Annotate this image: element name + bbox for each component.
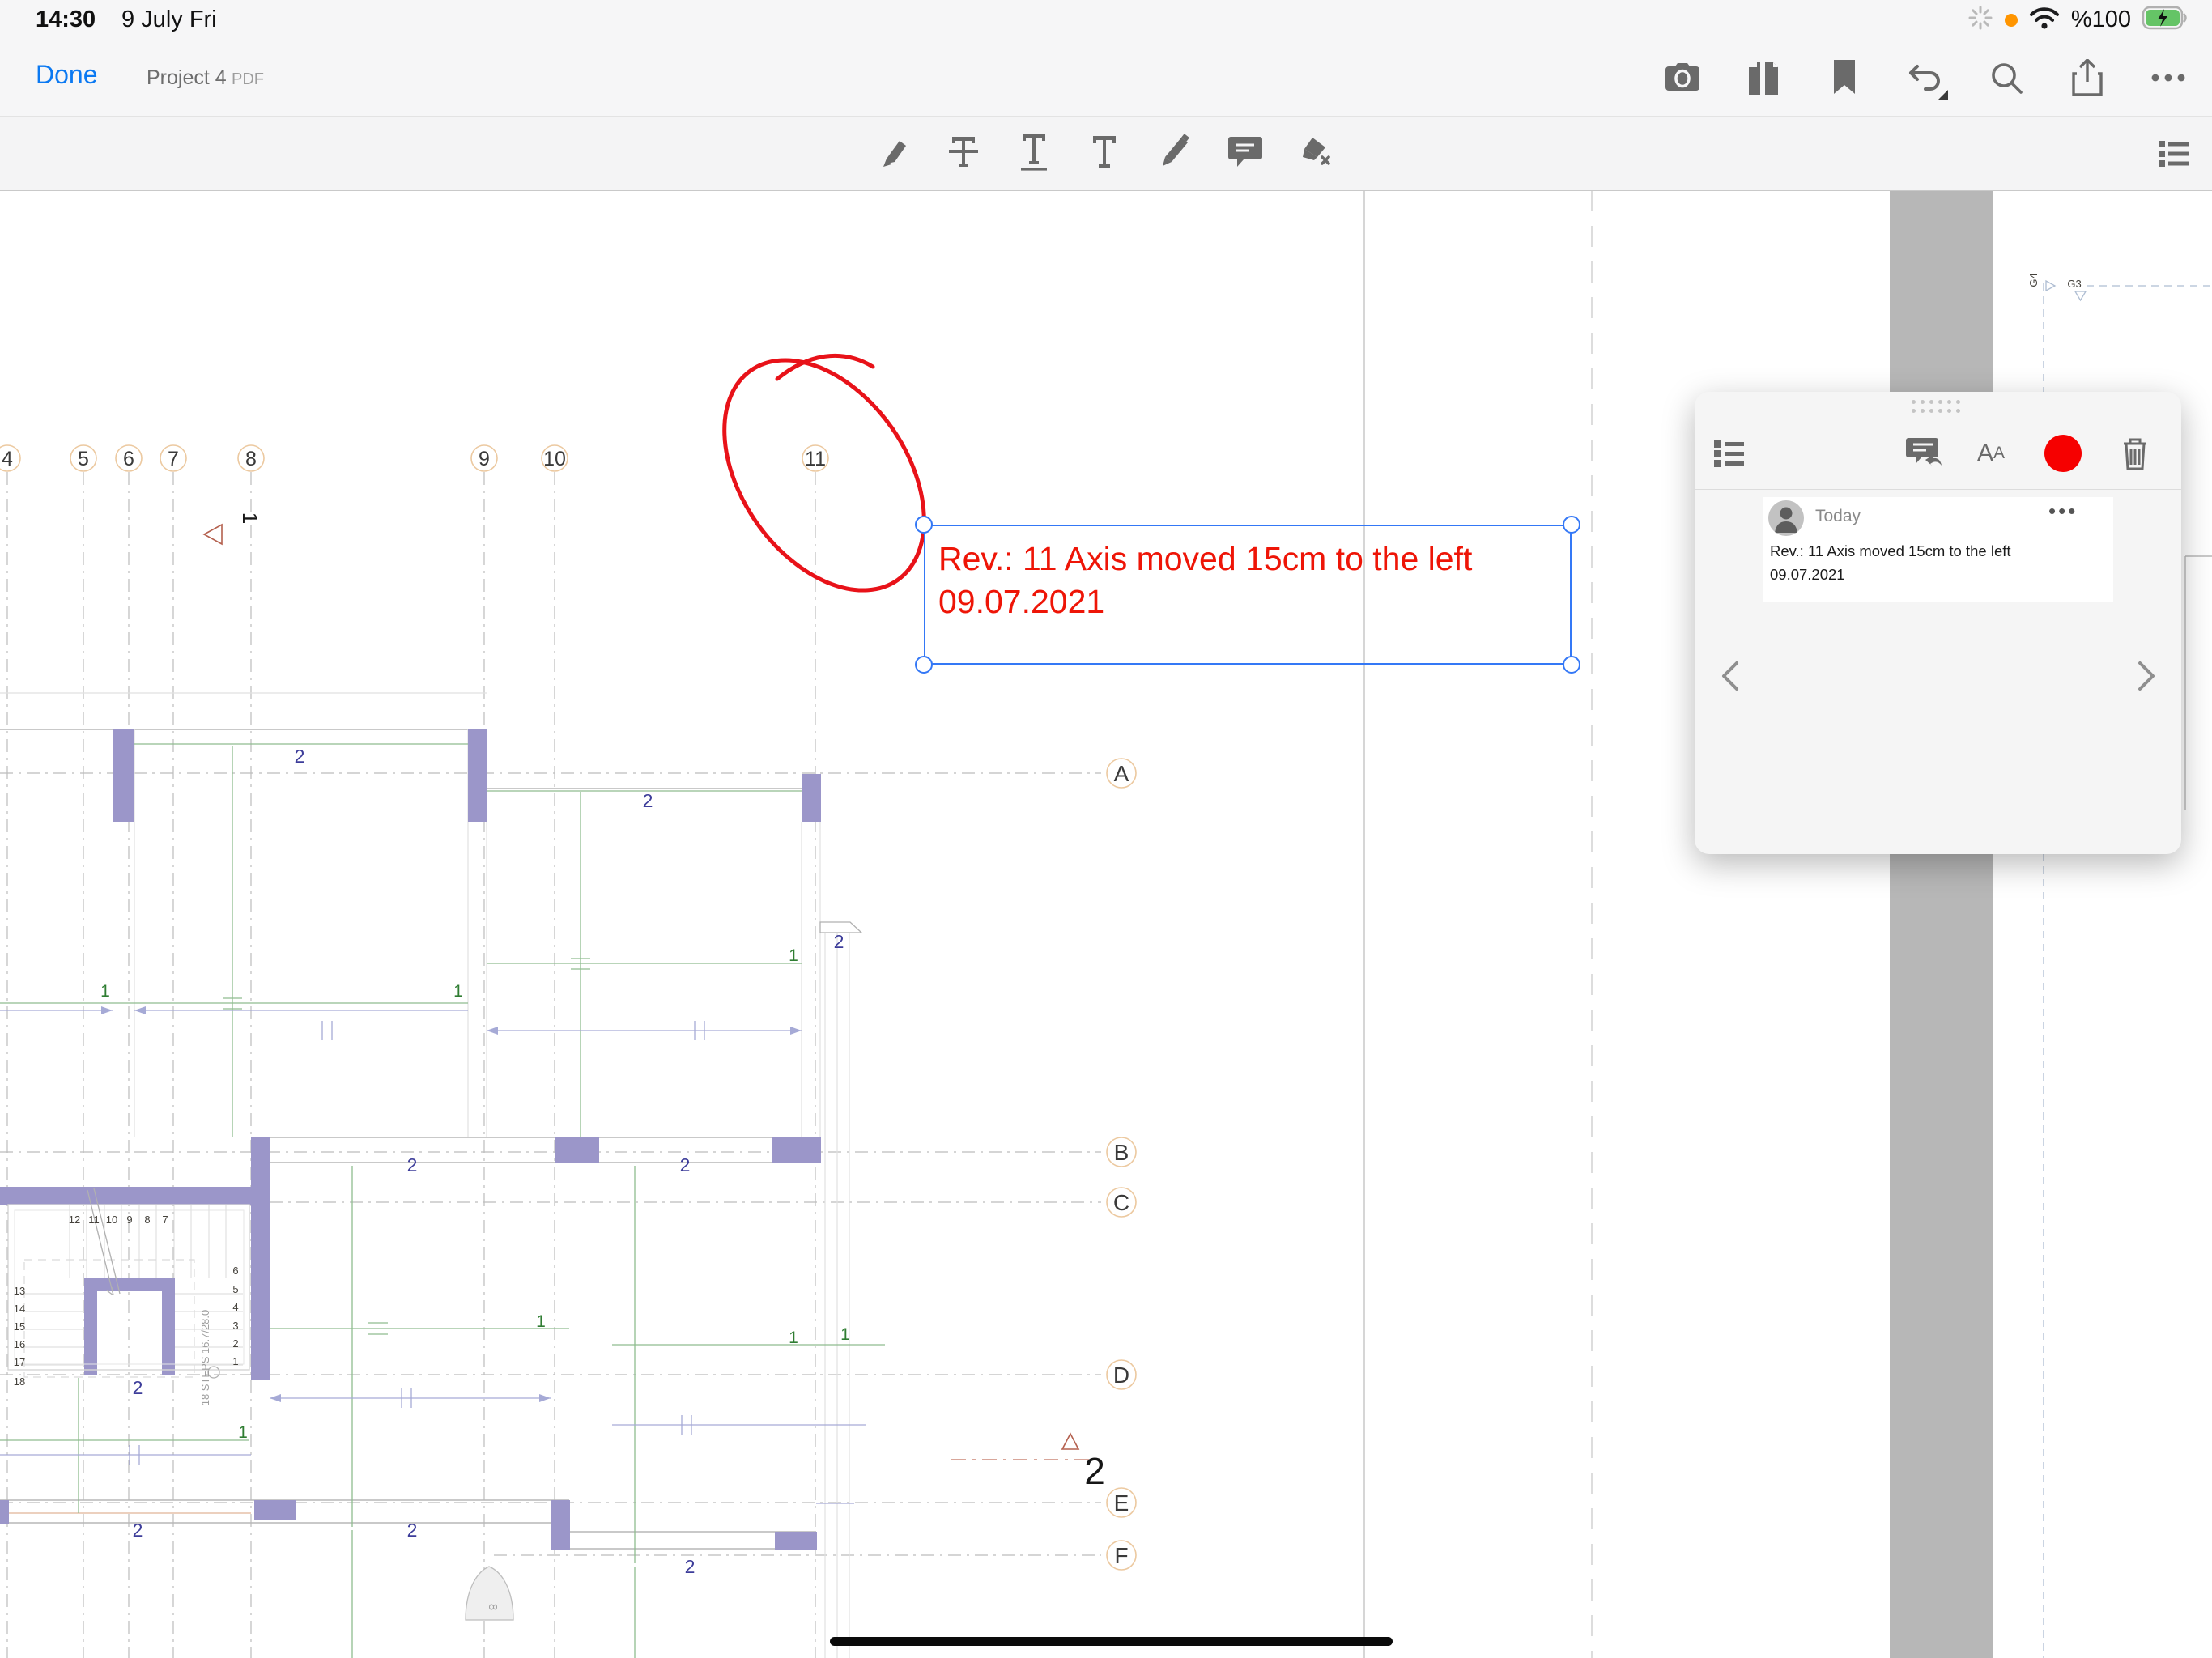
plan-label: 18 STEPS 16.7/28.0	[199, 1310, 211, 1406]
plan-label: F	[1114, 1543, 1128, 1568]
plan-label: 8	[245, 448, 257, 470]
plan-label: 2	[295, 746, 305, 767]
plan-label: 7	[162, 1214, 168, 1226]
plan-label: 2	[643, 790, 653, 811]
plan-label: 2	[133, 1377, 143, 1398]
plan-label: A	[1114, 761, 1129, 786]
plan-label: 10	[543, 448, 566, 470]
done-button[interactable]: Done	[36, 60, 98, 90]
status-bar: 14:30 9 July Fri %100	[0, 0, 2212, 39]
selection-handle-bottom-right[interactable]	[1563, 656, 1580, 674]
activity-spinner-icon	[1967, 5, 1993, 35]
strikethrough-text-tool-button[interactable]	[944, 128, 983, 176]
battery-percent: %100	[2071, 6, 2131, 33]
plan-label: D	[1113, 1363, 1129, 1388]
organize-pages-button[interactable]	[1744, 53, 1783, 102]
plan-label: 2	[232, 1337, 238, 1350]
bookmark-button[interactable]	[1825, 53, 1864, 102]
status-icons: %100	[1967, 5, 2189, 35]
more-options-button[interactable]	[2149, 53, 2188, 102]
plan-outline-lines	[0, 693, 849, 1658]
plan-label: 1	[100, 982, 110, 1001]
plan-label: G3	[2067, 278, 2081, 290]
document-type-badge: PDF	[232, 70, 264, 89]
eraser-tool-button[interactable]	[1296, 128, 1335, 176]
plan-label: 5	[232, 1283, 238, 1295]
plan-label: B	[1114, 1140, 1129, 1165]
comment-timestamp: Today	[1815, 507, 1861, 526]
home-indicator[interactable]	[830, 1637, 1393, 1646]
plan-label: 16	[14, 1338, 25, 1350]
battery-charging-icon	[2142, 6, 2189, 34]
annotation-text: Rev.: 11 Axis moved 15cm to the left 09.…	[938, 538, 1472, 623]
comment-list-view-button[interactable]	[1703, 427, 1755, 479]
plan-label: E	[1114, 1490, 1129, 1516]
annotation-tools	[874, 128, 1335, 176]
comment-text: Rev.: 11 Axis moved 15cm to the left 09.…	[1770, 539, 2110, 586]
plan-label: 1	[536, 1312, 546, 1331]
plan-label: 2	[685, 1556, 696, 1577]
plan-label: 9	[126, 1214, 132, 1226]
plan-label: 2	[407, 1154, 418, 1175]
pencil-draw-tool-button[interactable]	[1155, 128, 1194, 176]
selection-handle-top-left[interactable]	[915, 516, 933, 534]
document-title: Project 4	[147, 66, 227, 90]
lavender-dimensions	[0, 1006, 866, 1503]
walls	[0, 729, 821, 1550]
delete-annotation-button[interactable]	[2109, 427, 2161, 479]
plan-label: C	[1113, 1190, 1129, 1215]
comment-list-button[interactable]	[2155, 130, 2193, 178]
comment-card[interactable]: Today ••• Rev.: 11 Axis moved 15cm to th…	[1763, 497, 2113, 602]
plan-label: 2	[834, 931, 844, 952]
share-button[interactable]	[2068, 53, 2107, 102]
popup-drag-handle[interactable]	[1912, 400, 1965, 413]
plan-label: 10	[106, 1214, 117, 1226]
plan-label: 2	[133, 1520, 143, 1541]
plan-label: 3	[232, 1320, 238, 1332]
selection-handle-bottom-left[interactable]	[915, 656, 933, 674]
plan-label: 2	[407, 1520, 418, 1541]
selection-handle-top-right[interactable]	[1563, 516, 1580, 534]
main-toolbar: Done Project 4 PDF	[0, 39, 2212, 117]
plan-label: 6	[232, 1265, 238, 1277]
plan-label: 1	[238, 1423, 248, 1442]
door-window-symbols	[466, 922, 861, 1620]
orange-privacy-dot	[2005, 14, 2018, 27]
add-text-tool-button[interactable]	[1085, 128, 1124, 176]
plan-label: 1	[789, 1329, 798, 1347]
app-root: { "status": {"time": "14:30", "date": "9…	[0, 0, 2212, 1658]
comment-tool-button[interactable]	[1226, 128, 1265, 176]
plan-label: 1	[840, 1325, 850, 1344]
plan-label: 1	[789, 946, 798, 965]
plan-label: 8	[144, 1214, 150, 1226]
underline-text-tool-button[interactable]	[1015, 128, 1053, 176]
undo-button[interactable]	[1906, 53, 1945, 102]
popup-divider	[1695, 489, 2181, 490]
comment-popup: AA Today ••• Rev.: 11 Axis moved 15cm to…	[1695, 392, 2181, 854]
plan-label: 11	[805, 448, 826, 470]
highlighter-tool-button[interactable]	[874, 128, 912, 176]
plan-label: 7	[168, 448, 179, 470]
toolbar-actions	[1663, 53, 2188, 102]
undo-longpress-indicator	[1938, 90, 1948, 100]
plan-label: 2	[680, 1154, 691, 1175]
plan-label: 18	[14, 1375, 25, 1388]
plan-label: 4	[2, 448, 13, 470]
color-picker-button[interactable]	[2037, 427, 2089, 479]
plan-label: 11	[88, 1214, 100, 1226]
avatar	[1768, 500, 1804, 536]
plan-label: 14	[14, 1303, 25, 1315]
plan-label: 1	[453, 982, 463, 1001]
plan-label: 1	[238, 512, 262, 524]
selected-text-annotation[interactable]: Rev.: 11 Axis moved 15cm to the left 09.…	[924, 525, 1572, 665]
comment-more-button[interactable]: •••	[2048, 499, 2078, 524]
text-style-button[interactable]: AA	[1965, 427, 2017, 479]
camera-button[interactable]	[1663, 53, 1702, 102]
plan-label: 4	[232, 1301, 238, 1313]
section-markers	[204, 525, 1099, 1460]
current-color-red	[2044, 435, 2082, 472]
plan-label: 1	[232, 1355, 238, 1367]
plan-label: 8	[486, 1604, 500, 1610]
plan-label: G4	[2027, 273, 2040, 287]
plan-label: 12	[69, 1214, 80, 1226]
clock: 14:30	[36, 6, 96, 33]
plan-label: 5	[78, 448, 89, 470]
plan-label: 13	[14, 1285, 25, 1297]
reply-comment-button[interactable]	[1899, 427, 1950, 479]
next-comment-button[interactable]	[2129, 656, 2164, 696]
search-button[interactable]	[1987, 53, 2026, 102]
plan-label: 9	[479, 448, 490, 470]
previous-comment-button[interactable]	[1712, 656, 1748, 696]
plan-label: 2	[1084, 1450, 1105, 1492]
red-ellipse-annotation[interactable]	[683, 323, 965, 627]
annotation-toolbar	[0, 117, 2212, 191]
date: 9 July Fri	[121, 6, 217, 33]
plan-label: 6	[123, 448, 134, 470]
wifi-icon	[2029, 6, 2060, 34]
plan-label: 15	[14, 1320, 25, 1333]
plan-label: 17	[14, 1356, 25, 1368]
